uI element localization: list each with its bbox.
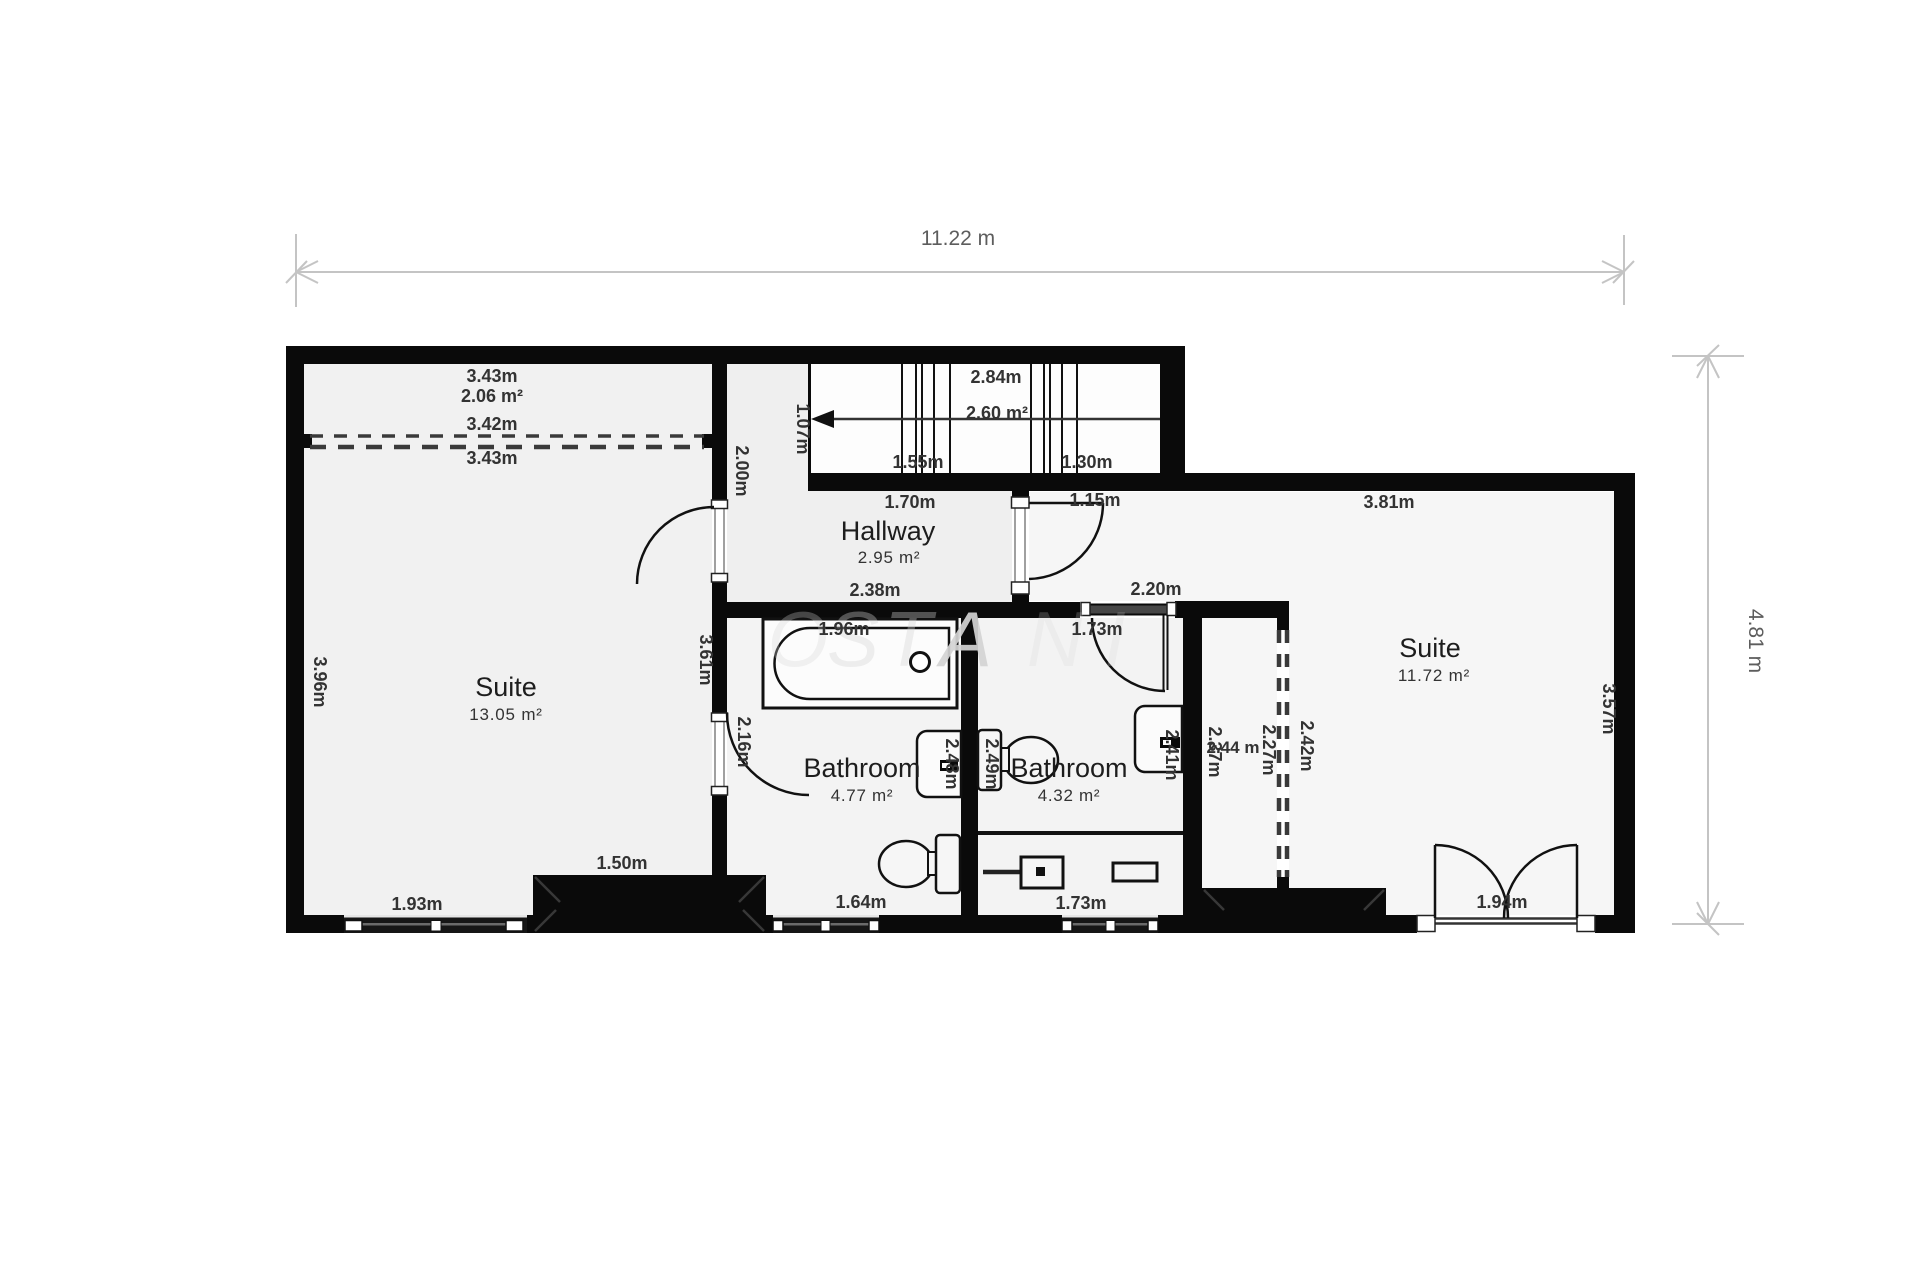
svg-text:2.38m: 2.38m xyxy=(849,580,900,600)
svg-text:2.44 m: 2.44 m xyxy=(1207,738,1260,757)
svg-text:2.20m: 2.20m xyxy=(1130,579,1181,599)
svg-text:3.81m: 3.81m xyxy=(1363,492,1414,512)
svg-text:1.07m: 1.07m xyxy=(793,403,813,454)
svg-text:1.94m: 1.94m xyxy=(1476,892,1527,912)
svg-text:A: A xyxy=(936,595,992,683)
svg-text:1.50m: 1.50m xyxy=(596,853,647,873)
svg-text:3.42m: 3.42m xyxy=(466,414,517,434)
svg-text:2.42m: 2.42m xyxy=(1297,720,1317,771)
svg-text:Bathroom: Bathroom xyxy=(1010,753,1127,783)
svg-text:4.32 m²: 4.32 m² xyxy=(1038,786,1101,805)
svg-text:Hallway: Hallway xyxy=(841,516,936,546)
svg-text:4.81 m: 4.81 m xyxy=(1744,609,1767,673)
svg-text:2.49m: 2.49m xyxy=(982,738,1002,789)
svg-text:2.27m: 2.27m xyxy=(1259,724,1279,775)
svg-text:3.43m: 3.43m xyxy=(466,366,517,386)
svg-text:3.43m: 3.43m xyxy=(466,448,517,468)
svg-text:2.06 m²: 2.06 m² xyxy=(461,386,523,406)
svg-text:S: S xyxy=(827,595,879,683)
svg-text:N: N xyxy=(1027,595,1084,683)
svg-text:Bathroom: Bathroom xyxy=(803,753,920,783)
svg-text:11.72 m²: 11.72 m² xyxy=(1398,666,1470,685)
svg-text:1.93m: 1.93m xyxy=(391,894,442,914)
svg-text:11.22 m: 11.22 m xyxy=(921,227,995,250)
svg-text:I: I xyxy=(1104,595,1126,683)
svg-text:T: T xyxy=(884,595,937,683)
svg-text:1.15m: 1.15m xyxy=(1069,490,1120,510)
svg-text:2.00m: 2.00m xyxy=(732,445,752,496)
svg-text:2.84m: 2.84m xyxy=(970,367,1021,387)
svg-text:3.96m: 3.96m xyxy=(310,656,330,707)
svg-text:1.73m: 1.73m xyxy=(1071,619,1122,639)
svg-text:1.70m: 1.70m xyxy=(884,492,935,512)
svg-text:2.48m: 2.48m xyxy=(942,738,962,789)
svg-text:1.55m: 1.55m xyxy=(892,452,943,472)
svg-text:O: O xyxy=(768,595,829,683)
svg-text:1.73m: 1.73m xyxy=(1055,893,1106,913)
svg-text:1.30m: 1.30m xyxy=(1061,452,1112,472)
svg-text:Suite: Suite xyxy=(1399,633,1461,663)
svg-text:2.60 m²: 2.60 m² xyxy=(966,403,1028,423)
svg-text:Suite: Suite xyxy=(475,672,537,702)
svg-text:3.61m: 3.61m xyxy=(696,634,716,685)
svg-text:3.57m: 3.57m xyxy=(1599,683,1619,734)
svg-text:2.41m: 2.41m xyxy=(1162,729,1182,780)
svg-text:1.64m: 1.64m xyxy=(835,892,886,912)
svg-text:1.96m: 1.96m xyxy=(818,619,869,639)
svg-text:13.05 m²: 13.05 m² xyxy=(469,705,543,724)
svg-text:2.16m: 2.16m xyxy=(734,716,754,767)
svg-text:4.77 m²: 4.77 m² xyxy=(831,786,894,805)
svg-text:2.95 m²: 2.95 m² xyxy=(858,548,921,567)
